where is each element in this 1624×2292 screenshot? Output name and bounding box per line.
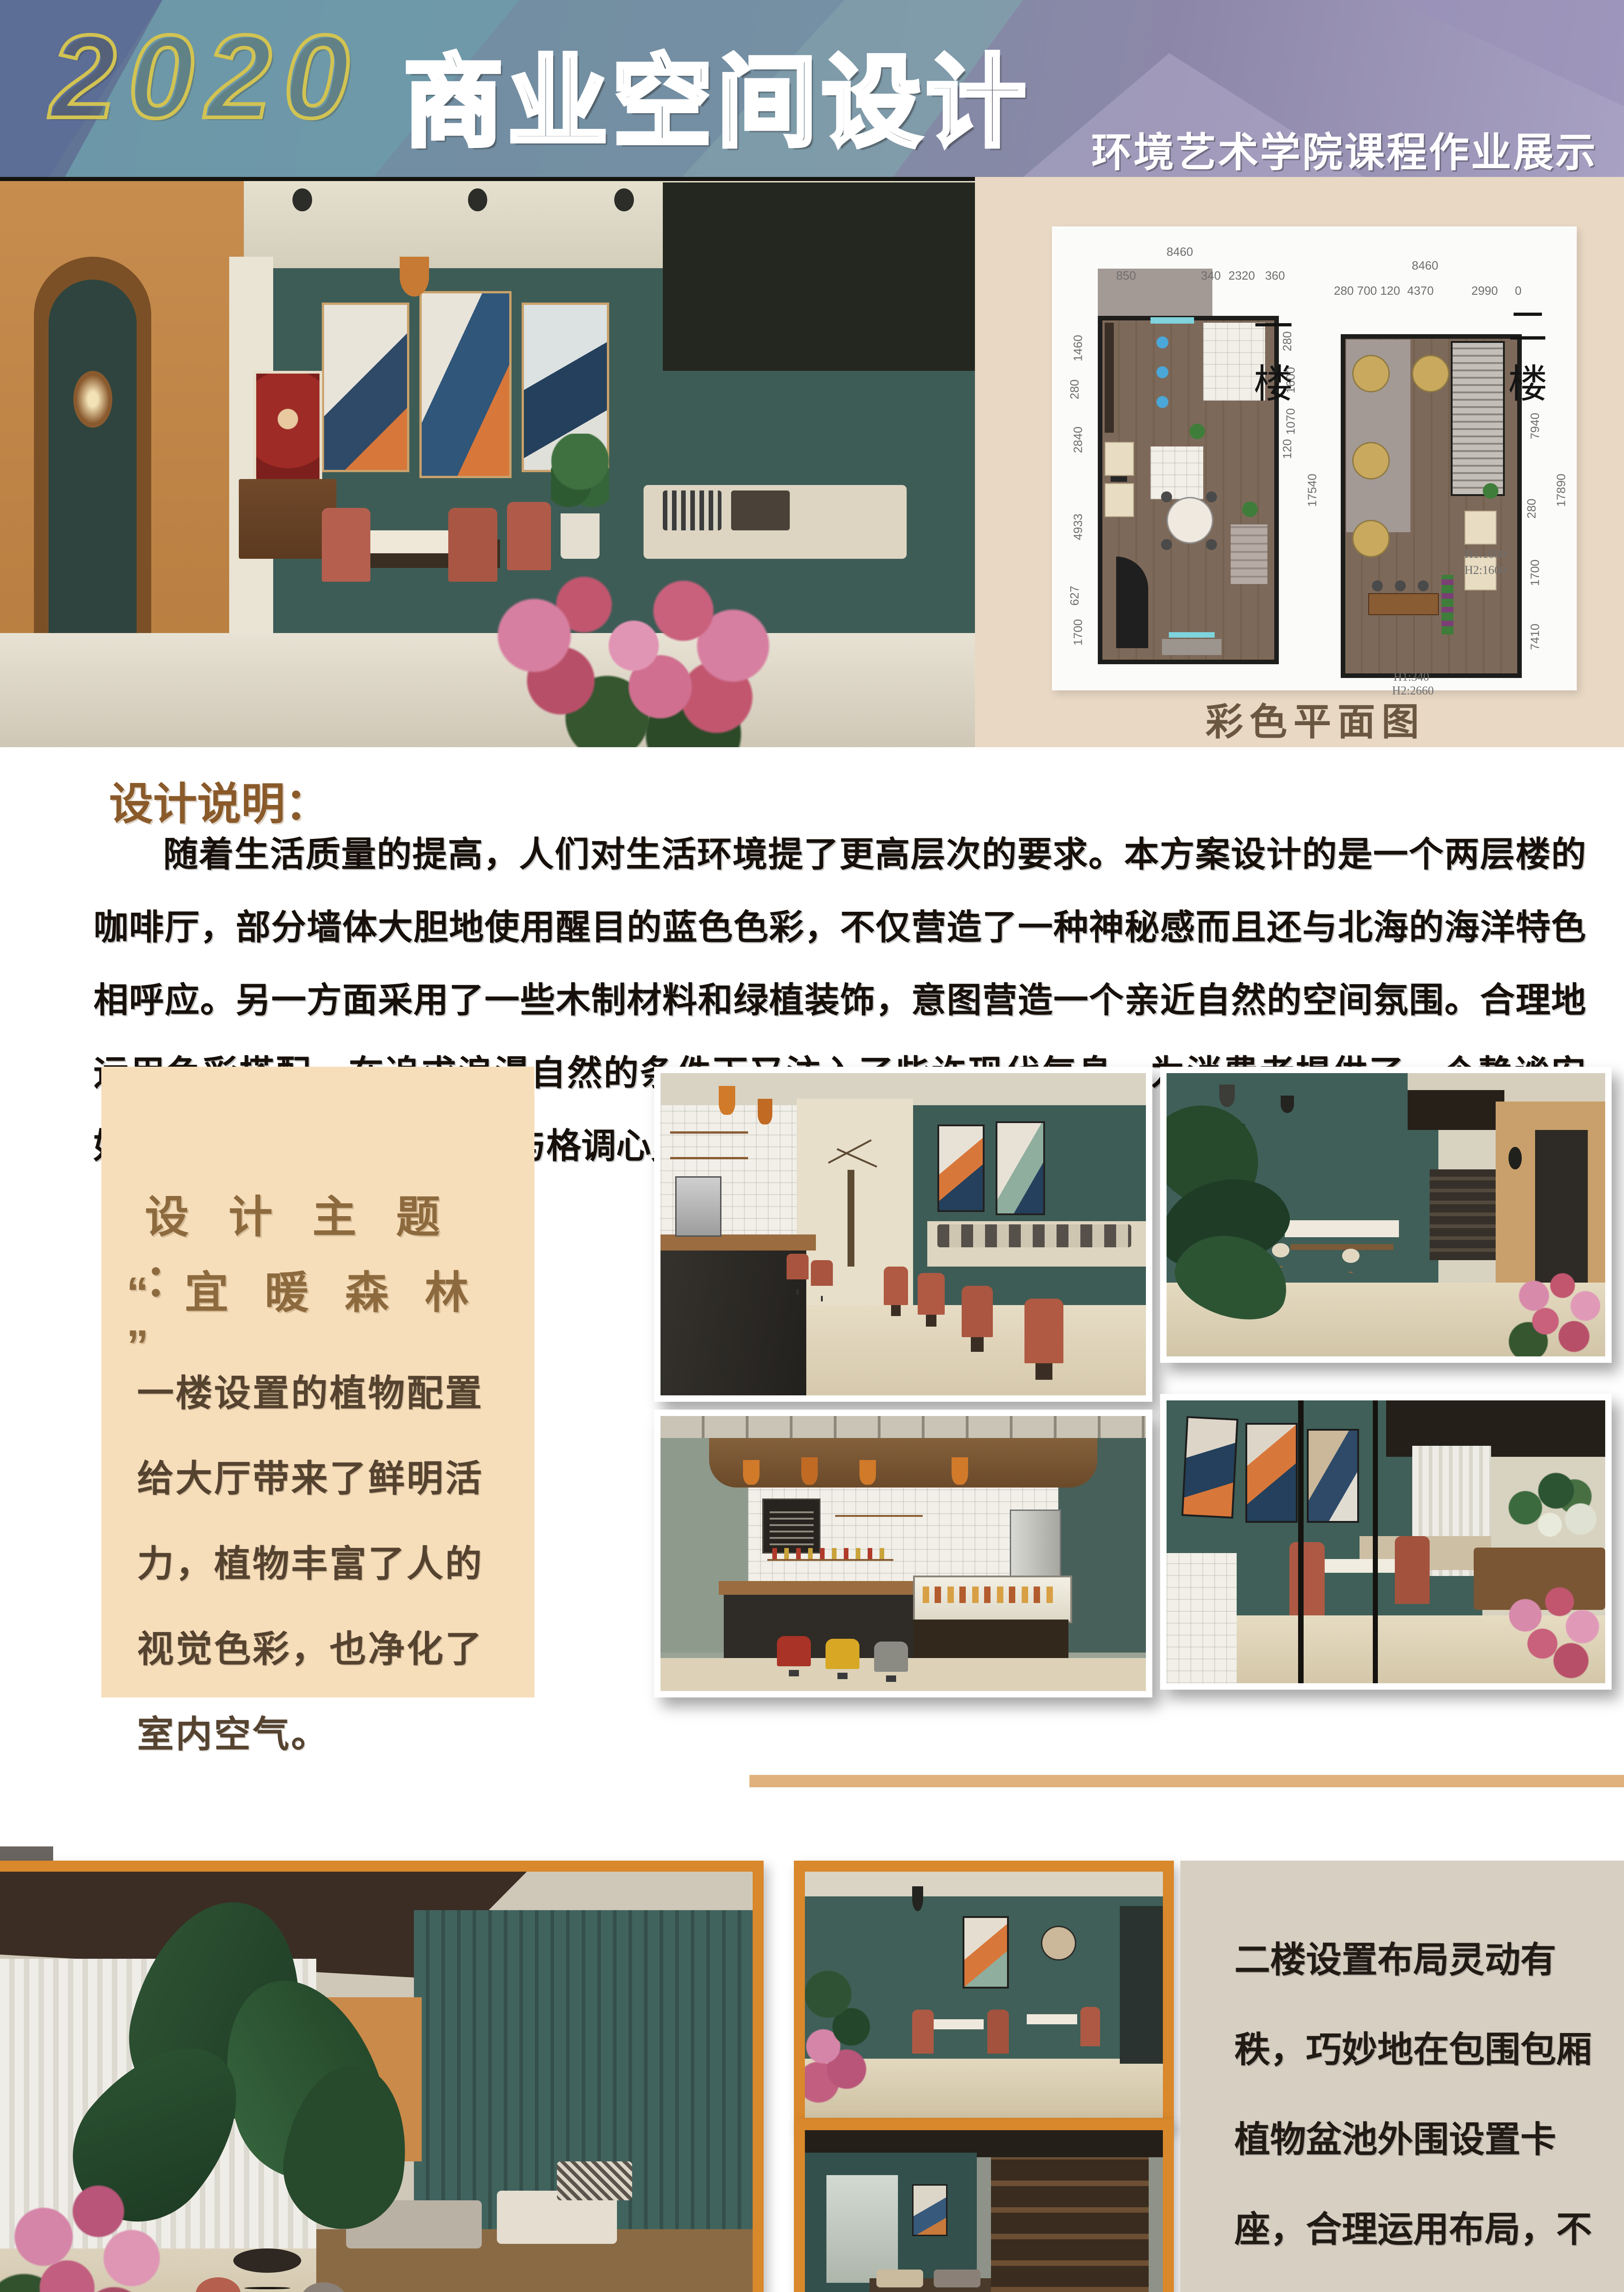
hydrangea (1482, 1457, 1605, 1570)
pendant-lamp (743, 1460, 760, 1485)
bar-stool (787, 1254, 809, 1279)
dim: 8460 (1167, 245, 1193, 259)
bookshelf (991, 2157, 1149, 2292)
coffee-bar-render-image (654, 1067, 1152, 1402)
dim: 17890 (1554, 474, 1569, 507)
dim: 280 (1068, 380, 1082, 399)
pendant-lamp (719, 1086, 735, 1115)
poster-page: 2020 商业空间设计 环境艺术学院课程作业展示 (0, 0, 1624, 2292)
painting (1307, 1429, 1359, 1523)
stool (1342, 1249, 1360, 1263)
wall-lamp (1508, 1147, 1522, 1169)
stool-red (777, 1636, 811, 1666)
portrait-painting (253, 371, 322, 485)
wood-shelf (670, 1131, 748, 1134)
theme-panel: 设 计 主 题 ： “ 宜 暖 森 林 ” 一楼设置的植物配置给大厅带来了鲜明活… (101, 1067, 534, 1697)
dim: 850 (1116, 269, 1136, 283)
table (927, 2019, 984, 2029)
jar-shelf (767, 1559, 893, 1561)
poster-subtitle: 环境艺术学院课程作业展示 (1091, 120, 1597, 177)
arch-inner (49, 280, 136, 667)
stool (1272, 1243, 1289, 1257)
dark-upper-wall (663, 182, 975, 371)
dim: 2840 (1071, 427, 1085, 453)
round-table (1167, 497, 1213, 544)
sink-dot (1156, 396, 1168, 408)
bar-display-render-image (654, 1410, 1152, 1697)
spotlight (468, 188, 488, 211)
second-floor-note-text: 二楼设置布局灵动有秩，巧妙地在包围包厢植物盆池外围设置卡座，合理运用布局，不浪费… (1234, 1915, 1596, 2292)
stool-yellow (826, 1639, 859, 1669)
flower-bush (0, 2152, 181, 2292)
pastries (923, 1587, 1059, 1603)
dim: 1700 (1528, 560, 1542, 586)
menu-lines (770, 1507, 813, 1545)
entry-mat (1162, 639, 1222, 655)
table (1316, 1559, 1403, 1573)
wall-art (912, 2184, 947, 2237)
jars (772, 1548, 889, 1559)
flower-bush (468, 553, 799, 747)
dim: 340 (1201, 269, 1221, 283)
dim: 1600 (1283, 367, 1298, 394)
black-post (1298, 1400, 1303, 1683)
sofa-cushion (663, 490, 721, 530)
section-divider-bar (749, 1775, 1624, 1787)
pendant-lamp (758, 1099, 772, 1124)
painting-2 (996, 1121, 1046, 1215)
flower-bush (1491, 1570, 1605, 1683)
tree-trunk (848, 1170, 854, 1267)
dim: H1:1080 (1464, 547, 1506, 561)
booth-seat (1105, 483, 1134, 517)
dim: 280 700 120 (1334, 284, 1400, 298)
coffee-machine (675, 1176, 721, 1237)
dim: 1460 (1071, 335, 1085, 362)
shelf-unit (1430, 1169, 1496, 1260)
dim: 2320 (1228, 269, 1255, 283)
bar-counter-front (661, 1247, 806, 1395)
sofa-cushion (731, 490, 790, 530)
cafe-chair (884, 1267, 908, 1305)
floorplan-panel: 一楼 8460 850 340 2320 360 1460 280 2840 4… (975, 177, 1624, 747)
sink-dot (1156, 336, 1168, 348)
painting-1 (322, 303, 409, 473)
wood-bulkhead (709, 1438, 1097, 1488)
dim: 360 (1265, 269, 1285, 283)
potted-plant (551, 434, 610, 525)
gold-table (1412, 355, 1449, 392)
stairs (1451, 341, 1505, 496)
dim: 8460 (1412, 259, 1438, 273)
lobby-render-image (0, 177, 975, 747)
bench-pillows (937, 1224, 1132, 1247)
round-wall-decor (1041, 1926, 1076, 1961)
spotlight (614, 188, 634, 211)
lobby-tiles (1151, 446, 1203, 499)
booth-seat (1105, 442, 1134, 476)
floorplan-sheet: 一楼 8460 850 340 2320 360 1460 280 2840 4… (1052, 226, 1577, 690)
pillow-striped (557, 2161, 632, 2200)
dim: H1:340 (1393, 670, 1429, 684)
window-strip (1169, 632, 1215, 638)
poster-title: 商业空间设计 (403, 21, 1030, 166)
rust-chair (912, 2010, 934, 2054)
dim: 7410 (1528, 624, 1542, 650)
dim: 4370 (1407, 284, 1434, 298)
dim: 280 (1525, 499, 1539, 518)
booth-seating-render-image (1160, 1394, 1612, 1690)
flower-bush (1500, 1260, 1605, 1356)
chair-pink (322, 508, 370, 582)
plant-dot (1483, 483, 1498, 499)
painting-1 (937, 1124, 985, 1212)
bar-counter (1105, 323, 1114, 433)
pendant-lamp (1219, 1085, 1235, 1107)
stool-gray (874, 1642, 908, 1672)
bench-cushion (934, 2270, 980, 2287)
dim: 2990 (1471, 284, 1498, 298)
sink-dot (1156, 366, 1168, 378)
rust-chair (1395, 1536, 1430, 1604)
marble-entry (1098, 269, 1212, 316)
second-floor-note-panel: 二楼设置布局灵动有秩，巧妙地在包围包厢植物盆池外围设置卡座，合理运用布局，不浪费… (1180, 1861, 1624, 2292)
stair-block (1231, 524, 1267, 584)
dim: 1700 (1071, 619, 1085, 646)
lounge-render-image (0, 1861, 764, 2292)
dim: H2:1660 (1464, 563, 1506, 577)
floorplan-2: 二楼 8460 280 700 120 4370 2990 0 7940 280… (1313, 226, 1577, 690)
planter-strip (1442, 575, 1453, 634)
painting (1182, 1416, 1239, 1518)
rust-chair (1080, 2007, 1100, 2046)
chair-dot (1418, 580, 1429, 591)
bar-stool (811, 1260, 833, 1286)
black-post (1373, 1400, 1378, 1683)
dim: 4933 (1071, 514, 1085, 540)
chair-dot (1395, 580, 1406, 591)
ceiling (805, 1872, 1163, 1896)
display-base (913, 1620, 1068, 1658)
chair-dot (1206, 491, 1217, 502)
long-table (1368, 593, 1439, 615)
dim: 627 (1068, 586, 1082, 606)
cafe-chair (962, 1286, 993, 1337)
plant-flowers (805, 1945, 884, 2108)
rust-chair (1289, 1542, 1325, 1615)
dim: 280 (1280, 331, 1294, 351)
chair-dot (1206, 539, 1217, 550)
window-strip (1151, 317, 1194, 324)
round-table (233, 2248, 301, 2273)
fridge (1010, 1510, 1061, 1584)
painting (963, 1916, 1009, 1989)
rust-chair (987, 2010, 1009, 2054)
gold-table (1352, 520, 1390, 557)
planter-pot (561, 513, 600, 559)
dim: 7940 (1528, 413, 1542, 440)
dining-area-render-image (1160, 1067, 1612, 1363)
dark-ceiling-band (1408, 1090, 1504, 1130)
pendant-lamp (912, 1886, 923, 1911)
window-glow (826, 2175, 898, 2283)
render-top-edge (0, 177, 975, 181)
floor2-label: 二楼 (1508, 294, 1577, 409)
dining-table (1285, 1220, 1399, 1237)
gold-table (1352, 442, 1390, 479)
spotlight (292, 188, 312, 211)
table (1027, 2014, 1077, 2024)
chair-dot (1161, 491, 1172, 502)
pendant-lamp (859, 1460, 876, 1485)
sofa-seat (1464, 511, 1497, 545)
gold-table (1352, 355, 1390, 392)
dim: 120 (1280, 439, 1294, 459)
pendant-lamp (1281, 1096, 1294, 1113)
floorplan-caption: 彩色平面图 (1173, 691, 1458, 746)
chair-dot (1161, 539, 1172, 550)
booth-table (1111, 476, 1127, 482)
painting-2 (419, 291, 512, 478)
second-floor-dining-render-image (794, 1861, 1174, 2129)
doorway (1120, 1906, 1163, 2064)
painting (1245, 1423, 1297, 1523)
cafe-chair (918, 1273, 944, 1315)
plant-dot (1242, 501, 1258, 517)
wood-shelf (670, 1157, 748, 1159)
floorplan-1: 一楼 8460 850 340 2320 360 1460 280 2840 4… (1052, 226, 1313, 690)
cafe-chair (1024, 1299, 1063, 1363)
tile-half-wall (1167, 1553, 1237, 1683)
dim: 1070 (1283, 408, 1298, 435)
header-banner: 2020 商业空间设计 环境艺术学院课程作业展示 (0, 0, 1624, 177)
year-text: 2020 (50, 8, 361, 144)
bench-cushion (876, 2270, 923, 2287)
pendant-lamp (801, 1457, 818, 1485)
chair-dot (1372, 580, 1383, 591)
dim: 0 (1515, 284, 1521, 298)
second-floor-bookshelf-render-image (794, 2119, 1174, 2292)
pendant-lamp (952, 1457, 968, 1485)
pendant-lamp (400, 257, 429, 297)
wall-lamp (73, 371, 112, 428)
jar-shelf (835, 1515, 923, 1517)
theme-body-text: 一楼设置的植物配置给大厅带来了鲜明活力，植物丰富了人的视觉色彩，也净化了室内空气… (137, 1351, 504, 1777)
plant-dot (1189, 424, 1205, 439)
